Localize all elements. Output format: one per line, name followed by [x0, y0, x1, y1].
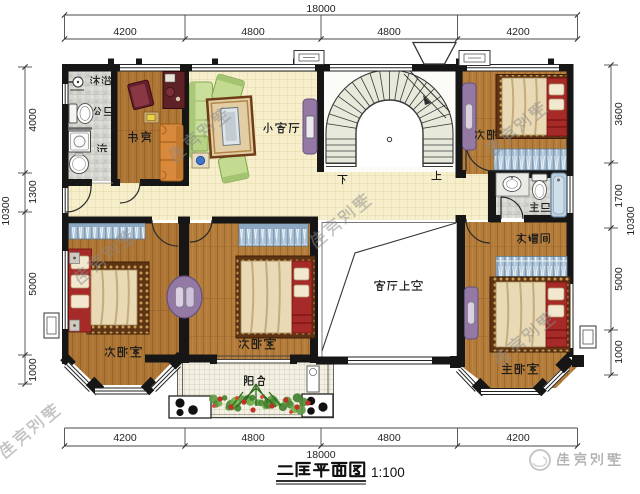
svg-text:3600: 3600	[613, 102, 625, 126]
svg-text:18000: 18000	[306, 3, 335, 15]
svg-text:4800: 4800	[241, 432, 265, 444]
svg-text:4200: 4200	[113, 26, 137, 38]
svg-text:1700: 1700	[613, 184, 625, 208]
svg-text:1:100: 1:100	[371, 465, 405, 480]
svg-text:4000: 4000	[27, 108, 39, 132]
svg-text:4200: 4200	[506, 26, 530, 38]
svg-text:1000: 1000	[27, 358, 39, 382]
svg-text:1000: 1000	[613, 340, 625, 364]
svg-text:1300: 1300	[27, 180, 39, 204]
svg-text:18000: 18000	[306, 449, 335, 461]
svg-text:4800: 4800	[377, 432, 401, 444]
svg-text:10300: 10300	[0, 196, 12, 225]
svg-text:4200: 4200	[113, 432, 137, 444]
svg-text:4200: 4200	[506, 432, 530, 444]
svg-text:5000: 5000	[613, 267, 625, 291]
svg-text:4800: 4800	[377, 26, 401, 38]
svg-text:10300: 10300	[625, 206, 637, 235]
svg-text:5000: 5000	[27, 272, 39, 296]
svg-text:4800: 4800	[241, 26, 265, 38]
